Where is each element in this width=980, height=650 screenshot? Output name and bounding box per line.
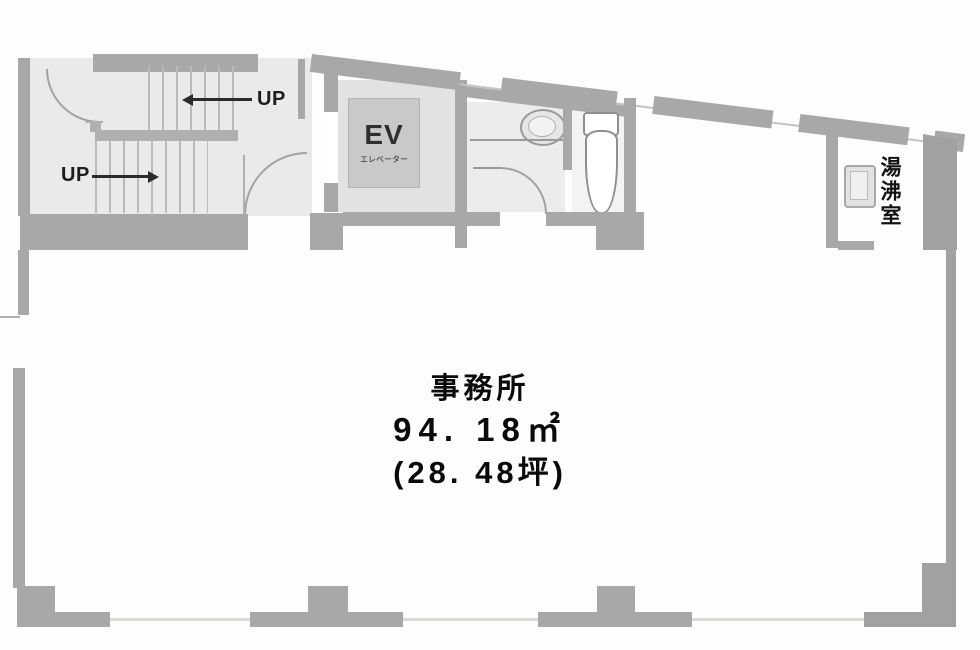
elevator-door-gap bbox=[324, 112, 338, 183]
kitchenette-left-wall bbox=[826, 133, 838, 248]
kitchenette-bottom-wall bbox=[838, 241, 874, 250]
elevator-sublabel: エレベーター bbox=[360, 154, 408, 165]
stairs-landing-step bbox=[90, 121, 101, 132]
stairwell-bottom-wall bbox=[20, 214, 248, 250]
up-arrow-upper-line bbox=[192, 98, 252, 101]
kitchenette-sink-inner bbox=[850, 171, 868, 200]
stairs-landing-edge bbox=[95, 130, 238, 141]
bottom-wall-segment-3 bbox=[538, 612, 692, 627]
up-arrow-upper-head bbox=[182, 94, 193, 106]
restroom-left-wall-foot bbox=[455, 212, 467, 248]
up-arrow-lower-line bbox=[92, 175, 150, 178]
bottom-wall-segment-1 bbox=[17, 612, 110, 627]
up-label-lower: UP bbox=[61, 164, 90, 187]
bottom-pillar-2 bbox=[308, 586, 348, 614]
diag-wall-segment bbox=[798, 114, 909, 145]
left-entry-sill-line bbox=[0, 316, 20, 318]
left-exterior-wall-upper bbox=[18, 58, 30, 216]
bottom-window-line-2 bbox=[403, 618, 538, 621]
elevator-label: EV bbox=[364, 121, 403, 149]
washbasin-inner bbox=[528, 116, 556, 137]
wc-right-wall bbox=[624, 98, 636, 216]
restroom-divider-wall bbox=[563, 92, 572, 170]
right-exterior-wall-thin bbox=[946, 250, 956, 568]
office-name: 事務所 bbox=[320, 370, 640, 408]
restroom-bottom-pillar bbox=[596, 212, 644, 250]
left-exterior-wall-mid bbox=[18, 250, 29, 315]
kitchenette-label: 湯沸室 bbox=[874, 156, 904, 228]
elevator-bottom-pillar bbox=[310, 213, 343, 250]
lobby-door-post bbox=[298, 59, 305, 119]
office-area-sqm: 94. 18㎡ bbox=[320, 408, 640, 452]
floor-plan: UP UP EV エレベーター 湯沸室 bbox=[0, 0, 980, 650]
bottom-window-line-3 bbox=[692, 618, 864, 621]
bottom-wall-segment-2 bbox=[250, 612, 403, 627]
bottom-pillar-3 bbox=[597, 586, 635, 614]
diag-wall-segment bbox=[652, 96, 773, 128]
elevator-bottom-wall bbox=[343, 212, 500, 226]
restroom-bottom-wall-right bbox=[546, 212, 598, 226]
bottom-window-line-1 bbox=[110, 618, 250, 621]
left-exterior-wall-lower bbox=[13, 368, 25, 588]
up-label-upper: UP bbox=[257, 88, 286, 111]
bottom-wall-segment-4 bbox=[864, 612, 956, 627]
window-glazing-line bbox=[772, 122, 799, 127]
right-exterior-wall-top bbox=[923, 134, 957, 250]
counter-edge-line bbox=[470, 139, 565, 141]
up-arrow-lower-head bbox=[148, 171, 159, 183]
office-text-block: 事務所 94. 18㎡ (28. 48坪) bbox=[320, 370, 640, 494]
elevator-cab: EV エレベーター bbox=[348, 98, 420, 188]
office-area-tsubo: (28. 48坪) bbox=[320, 452, 640, 494]
